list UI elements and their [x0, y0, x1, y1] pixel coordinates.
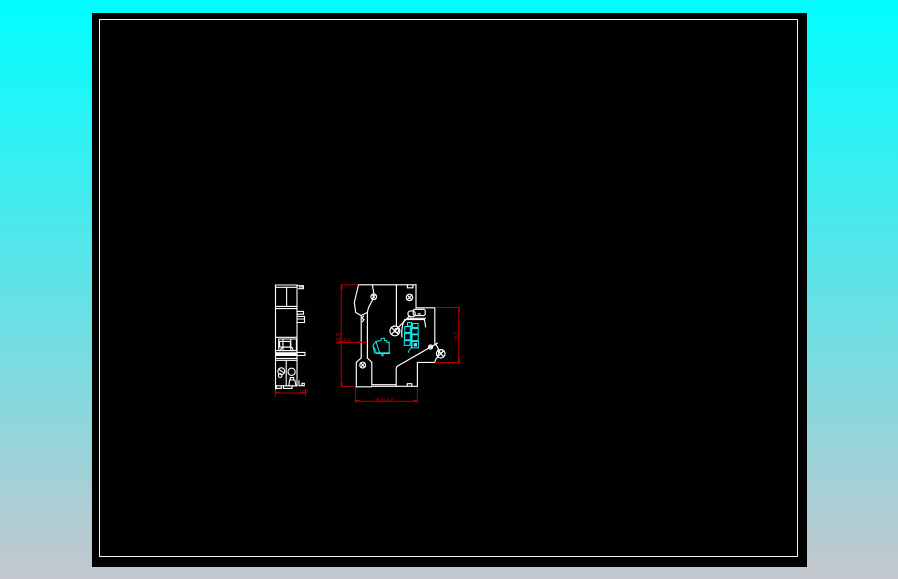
svg-text:84.5: 84.5: [335, 332, 342, 345]
svg-text:5.5: 5.5: [344, 337, 351, 342]
svg-text:45.5x 8.3: 45.5x 8.3: [375, 397, 394, 402]
svg-text:35.5: 35.5: [453, 331, 458, 340]
svg-text:7.65: 7.65: [300, 389, 309, 394]
